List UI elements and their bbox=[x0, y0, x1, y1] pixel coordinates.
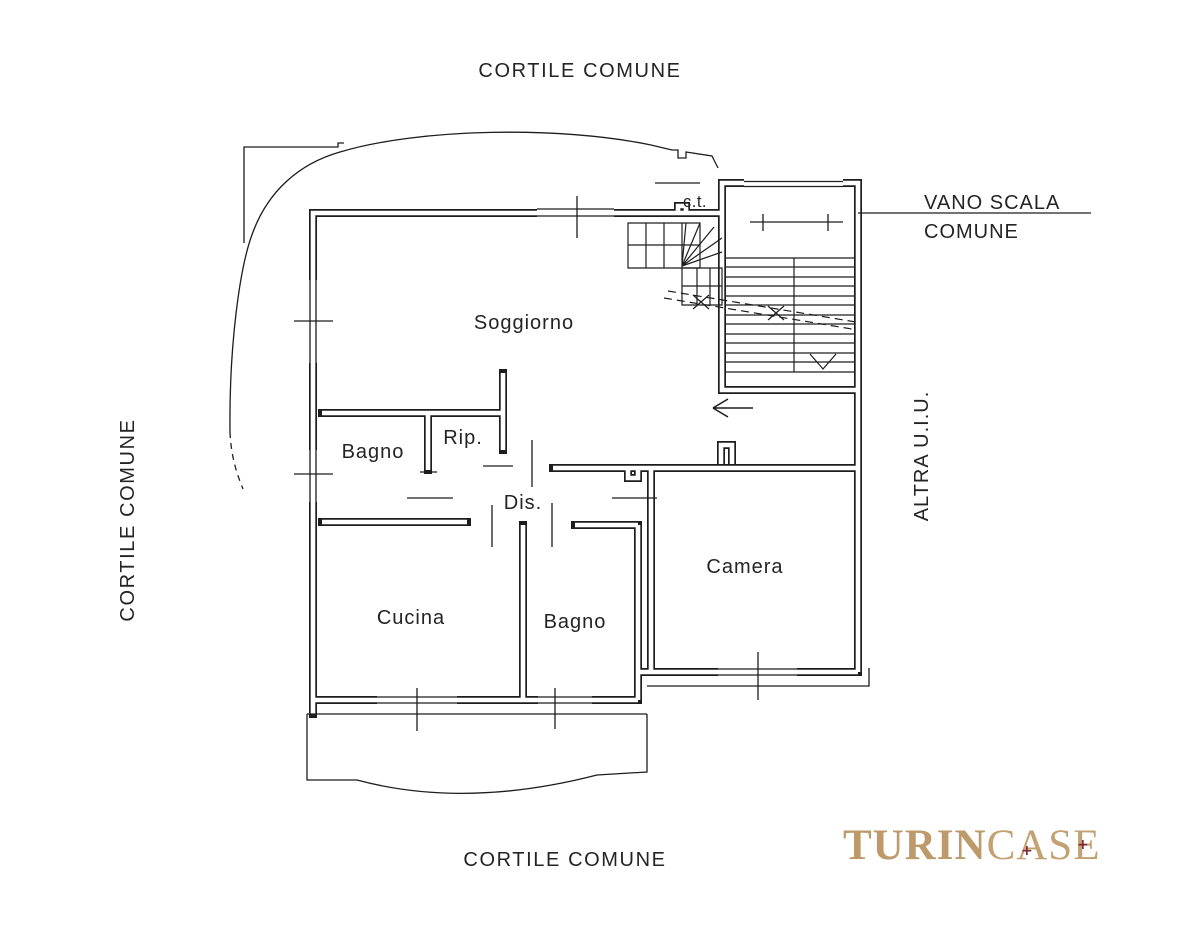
logo-accent-icon: + bbox=[1021, 844, 1034, 858]
label-rip: Rip. bbox=[443, 427, 483, 449]
window-left-upper bbox=[294, 280, 333, 363]
window-camera bbox=[718, 652, 797, 700]
boundary-to-stairwell bbox=[651, 145, 718, 168]
label-ct: c.t. bbox=[683, 193, 707, 211]
floor-plan-page: CORTILE COMUNE CORTILE COMUNE CORTILE CO… bbox=[0, 0, 1177, 936]
label-dis: Dis. bbox=[504, 492, 542, 514]
window-top-soggiorno bbox=[537, 196, 614, 238]
winder-steps-grid-b bbox=[682, 268, 722, 305]
staircase bbox=[628, 223, 856, 372]
stair-break-line bbox=[664, 291, 856, 329]
logo-accent-icon: + bbox=[1077, 838, 1090, 852]
label-vano-scala-comune: COMUNE bbox=[924, 221, 1019, 243]
label-camera: Camera bbox=[706, 556, 783, 578]
logo-text-primary: TURIN bbox=[843, 822, 987, 869]
balcony-outline bbox=[307, 714, 647, 793]
label-cortile-comune-left: CORTILE COMUNE bbox=[117, 418, 139, 621]
label-cortile-comune-top: CORTILE COMUNE bbox=[478, 60, 681, 82]
label-cortile-comune-bottom: CORTILE COMUNE bbox=[463, 849, 666, 871]
floor-plan-drawing: CORTILE COMUNE CORTILE COMUNE CORTILE CO… bbox=[0, 0, 1177, 936]
window-cucina bbox=[377, 688, 457, 731]
window-left-lower bbox=[294, 450, 333, 502]
entrance-arrow bbox=[713, 399, 753, 417]
label-cucina: Cucina bbox=[377, 607, 445, 629]
courtyard-arc-dashed bbox=[230, 432, 243, 489]
label-bagno-1: Bagno bbox=[342, 441, 405, 463]
landing-sill bbox=[750, 214, 843, 231]
boundary-top-left bbox=[244, 143, 344, 243]
window-bagno2 bbox=[538, 688, 592, 729]
window-stairwell-top bbox=[744, 179, 843, 188]
label-altra-uiu: ALTRA U.I.U. bbox=[911, 391, 933, 522]
label-soggiorno: Soggiorno bbox=[474, 312, 574, 334]
courtyard-arc bbox=[230, 132, 651, 432]
label-vano-scala: VANO SCALA bbox=[924, 192, 1060, 214]
turincase-logo: TURINCASE + + bbox=[843, 822, 1143, 892]
label-bagno-2: Bagno bbox=[544, 611, 607, 633]
